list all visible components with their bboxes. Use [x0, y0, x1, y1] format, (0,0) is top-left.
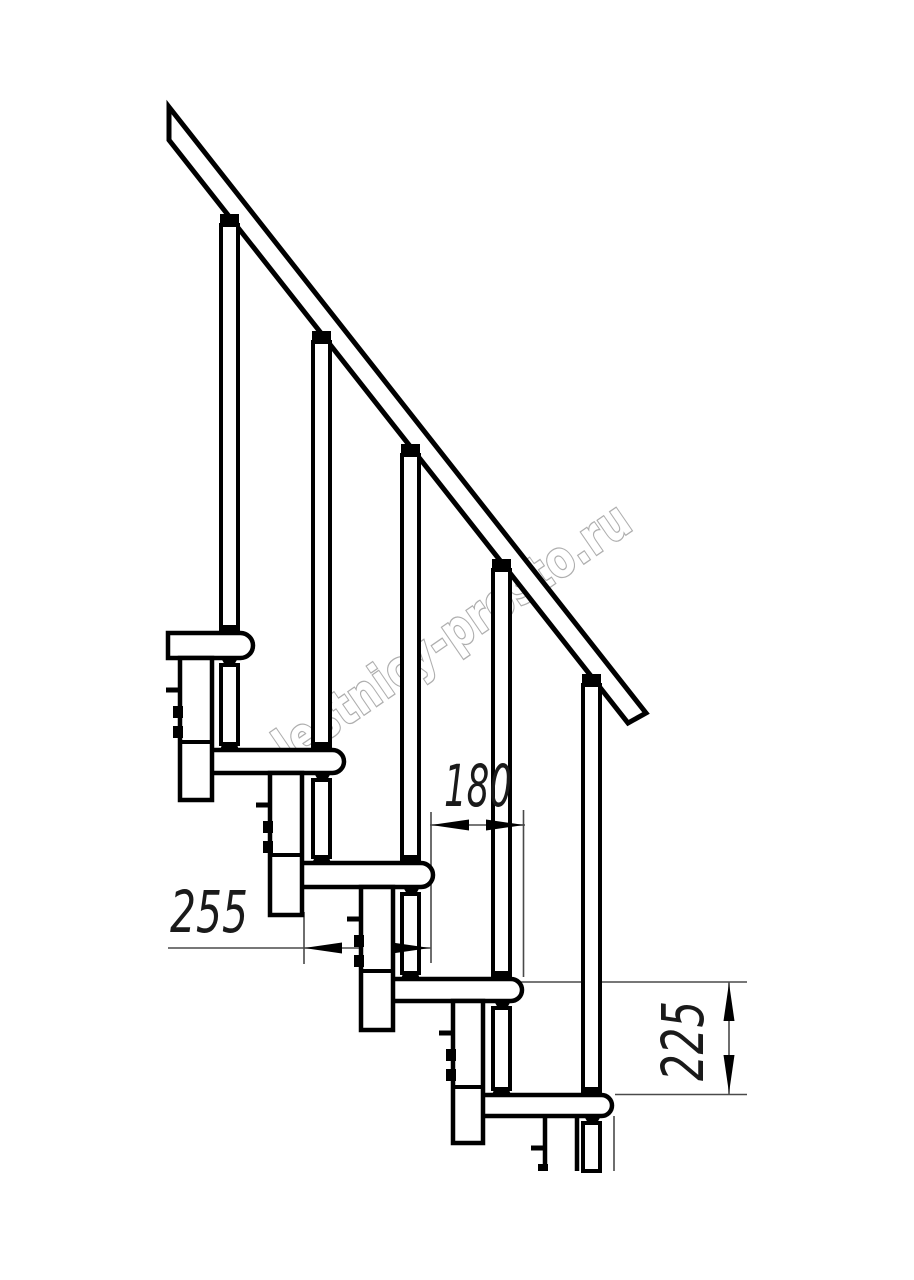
side-bolt	[173, 706, 183, 718]
tread	[210, 750, 344, 773]
dim-label-255: 255	[170, 878, 248, 946]
side-bolt	[263, 841, 273, 853]
baluster-base-connector	[492, 971, 511, 979]
side-bolt	[263, 821, 273, 833]
technical-drawing-page: lestnicy-prosto.ru	[0, 0, 914, 1280]
side-bolt	[538, 1164, 548, 1171]
arrowhead-up	[724, 983, 735, 1021]
column-module	[270, 773, 302, 915]
baluster-base-connector	[401, 855, 420, 863]
arrowhead-left	[304, 943, 342, 954]
column-module	[361, 887, 393, 1030]
baluster	[221, 225, 238, 633]
side-bolt	[354, 935, 364, 947]
rod-foot-connector	[401, 971, 420, 979]
baluster	[402, 455, 419, 863]
column-module	[180, 658, 212, 800]
staircase	[166, 107, 646, 1171]
support-rod	[402, 894, 419, 973]
support-rod	[493, 1008, 510, 1089]
arrowhead-left	[431, 820, 469, 831]
rod-foot-connector	[492, 1087, 511, 1095]
tread	[390, 979, 522, 1001]
dim-label-180: 180	[444, 752, 512, 820]
support-rod	[221, 665, 238, 744]
stair-drawing: lestnicy-prosto.ru	[0, 0, 914, 1280]
side-bolt	[354, 955, 364, 967]
support-rod	[583, 1123, 600, 1171]
baluster-base-connector	[312, 742, 331, 750]
dim-label-225: 225	[649, 1001, 717, 1081]
arrowhead-down	[724, 1055, 735, 1093]
baluster-base-connector	[220, 625, 239, 633]
tread	[168, 633, 253, 658]
baluster-base-connector	[582, 1087, 601, 1095]
side-bolt	[446, 1049, 456, 1061]
tread	[300, 863, 433, 887]
side-bolt	[173, 726, 183, 738]
side-bolt	[446, 1069, 456, 1081]
baluster	[313, 342, 330, 750]
tread	[481, 1095, 612, 1116]
column-module	[453, 1001, 483, 1143]
support-rod	[313, 780, 330, 857]
rod-foot-connector	[220, 742, 239, 750]
baluster	[583, 685, 600, 1095]
